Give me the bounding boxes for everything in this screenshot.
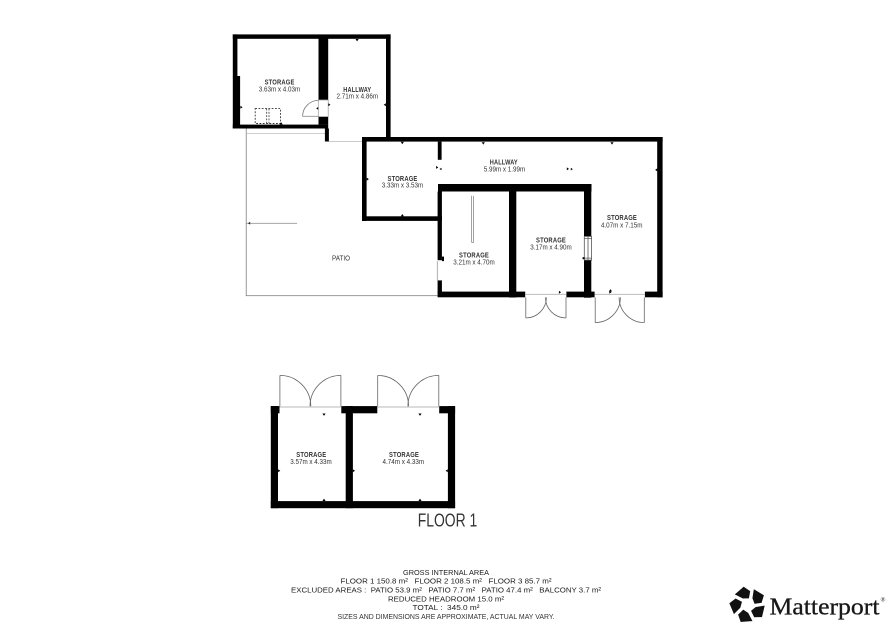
svg-text:3.57m x 4.33m: 3.57m x 4.33m <box>290 459 332 466</box>
svg-text:5.99m x 1.99m: 5.99m x 1.99m <box>484 166 526 173</box>
svg-text:REDUCED HEADROOM 15.0 m²: REDUCED HEADROOM 15.0 m² <box>388 594 504 603</box>
svg-text:4.74m x 4.33m: 4.74m x 4.33m <box>383 459 425 466</box>
svg-text:2.71m x 4.86m: 2.71m x 4.86m <box>337 94 379 101</box>
svg-text:STORAGE: STORAGE <box>607 215 637 222</box>
svg-text:STORAGE: STORAGE <box>296 452 326 459</box>
svg-text:3.33m x 3.53m: 3.33m x 3.53m <box>382 183 424 190</box>
svg-text:3.21m x 4.70m: 3.21m x 4.70m <box>453 260 495 267</box>
svg-text:Matterport: Matterport <box>770 593 880 620</box>
svg-text:EXCLUDED AREAS : PATIO 53.9 m: EXCLUDED AREAS : PATIO 53.9 m² PATIO 7.7… <box>291 586 601 595</box>
svg-text:SIZES AND DIMENSIONS ARE APPRO: SIZES AND DIMENSIONS ARE APPROXIMATE, AC… <box>338 612 555 621</box>
svg-text:4.07m x 7.15m: 4.07m x 7.15m <box>601 222 643 229</box>
svg-text:3.17m x 4.90m: 3.17m x 4.90m <box>530 245 572 252</box>
svg-text:TOTAL : 345.0 m²: TOTAL : 345.0 m² <box>413 603 480 612</box>
svg-text:GROSS INTERNAL AREA: GROSS INTERNAL AREA <box>403 568 490 577</box>
svg-text:STORAGE: STORAGE <box>389 452 419 459</box>
svg-text:FLOOR 1 150.8 m² FLOOR 2 108: FLOOR 1 150.8 m² FLOOR 2 108.5 m² FLOOR … <box>341 577 552 586</box>
svg-text:3.63m x 4.03m: 3.63m x 4.03m <box>259 87 301 94</box>
svg-text:®: ® <box>881 597 886 604</box>
svg-text:FLOOR 1: FLOOR 1 <box>418 510 478 531</box>
svg-text:PATIO: PATIO <box>332 256 350 263</box>
svg-text:STORAGE: STORAGE <box>459 252 489 259</box>
